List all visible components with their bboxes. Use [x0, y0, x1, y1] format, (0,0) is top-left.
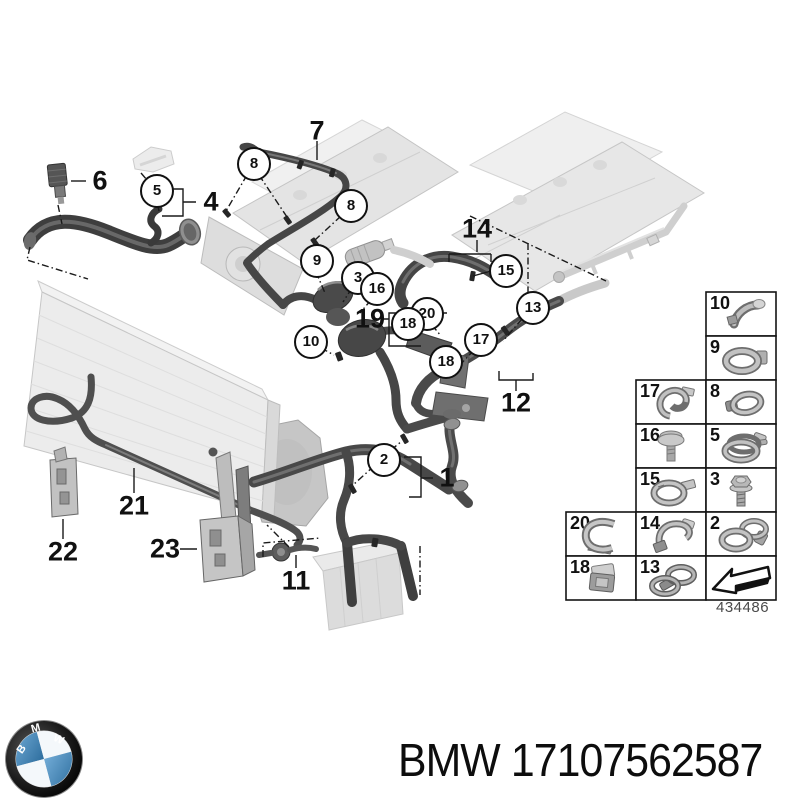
legend-cell: 20 — [566, 512, 636, 556]
pipe-clip-icon — [636, 380, 706, 424]
legend-cell: 18 — [566, 556, 636, 600]
box-clip-icon — [566, 556, 636, 600]
part-number-line: BMW17107562587 — [398, 733, 762, 787]
direction-arrow-icon — [706, 556, 776, 600]
circled-callout: 16 — [360, 272, 394, 306]
callout-number: 12 — [501, 390, 531, 417]
hose-holder-icon — [706, 292, 776, 336]
legend-cell: 10 — [706, 292, 776, 336]
circled-callout: 18 — [429, 345, 463, 379]
hose-clamp-icon — [706, 380, 776, 424]
callout-number: 7 — [309, 118, 324, 145]
circled-callout: 2 — [367, 443, 401, 477]
callout-number: 19 — [355, 306, 385, 333]
legend-cell: 9 — [706, 336, 776, 380]
spring-band-clamp-icon — [706, 424, 776, 468]
legend-cell: 16 — [636, 424, 706, 468]
circled-callout: 15 — [489, 254, 523, 288]
legend-cell: 3 — [706, 468, 776, 512]
callout-number: 11 — [282, 568, 311, 595]
circled-callout: 17 — [464, 323, 498, 357]
legend-cell — [706, 556, 776, 600]
legend-cell: 17 — [636, 380, 706, 424]
push-rivet-icon — [636, 424, 706, 468]
callout-number: 23 — [150, 536, 180, 563]
callout-number: 14 — [462, 216, 492, 243]
circled-callout: 18 — [391, 307, 425, 341]
legend-cell: 8 — [706, 380, 776, 424]
retainer-clip-icon — [566, 512, 636, 556]
legend-cell: 14 — [636, 512, 706, 556]
callout-number: 4 — [203, 189, 218, 216]
legend-cell: 15 — [636, 468, 706, 512]
part-number-text: 17107562587 — [511, 734, 762, 786]
brand-text: BMW — [398, 734, 500, 786]
callout-number: 1 — [439, 465, 454, 492]
circled-callout: 8 — [237, 147, 271, 181]
tab-clamp-icon — [636, 468, 706, 512]
circled-callout: 8 — [334, 189, 368, 223]
sheet-number: 434486 — [716, 599, 769, 616]
ring-clamp-icon — [706, 336, 776, 380]
circled-callout: 10 — [294, 325, 328, 359]
legend-cell: 2 — [706, 512, 776, 556]
parts-diagram-page: 6 4 7 14 19 12 1 21 22 23 11 5 8 8 9 3 1… — [0, 0, 800, 800]
legend-cell: 5 — [706, 424, 776, 468]
legend-cell: 13 — [636, 556, 706, 600]
circled-callout: 13 — [516, 291, 550, 325]
circled-callout: 5 — [140, 174, 174, 208]
bmw-logo-icon: B M W — [2, 717, 86, 800]
double-ring-clamp-icon — [636, 556, 706, 600]
circled-callout: 9 — [300, 244, 334, 278]
callout-number: 21 — [119, 493, 149, 520]
flange-bolt-icon — [706, 468, 776, 512]
callout-number: 6 — [92, 168, 107, 195]
double-clamp-icon — [706, 512, 776, 556]
callout-number: 22 — [48, 539, 78, 566]
hook-clip-icon — [636, 512, 706, 556]
